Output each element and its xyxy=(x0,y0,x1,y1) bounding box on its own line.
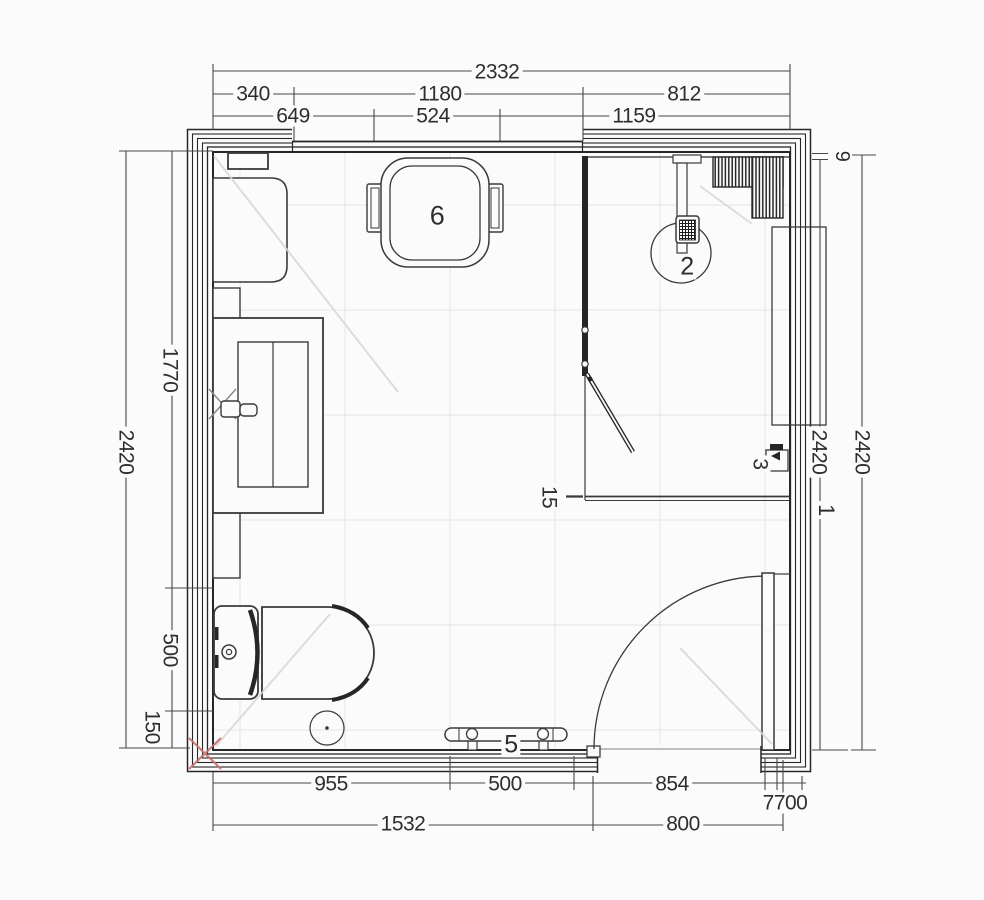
toilet xyxy=(214,606,374,700)
shower-drain-grate xyxy=(680,220,696,240)
dim-left-150: 150 xyxy=(142,707,163,747)
glass-partition xyxy=(582,156,588,376)
item-label-5: 5 xyxy=(501,733,520,758)
dim-top-649: 649 xyxy=(273,106,313,127)
dim-right-2420-outer: 2420 xyxy=(852,427,873,478)
item-label-3: 3 xyxy=(750,455,771,472)
item-label-15: 15 xyxy=(539,483,560,511)
dim-left-500: 500 xyxy=(160,630,181,670)
shower-column-mount xyxy=(673,155,701,163)
floorplan-canvas: 2332340118081264952411592420177050015092… xyxy=(0,0,984,900)
floorplan-drawing xyxy=(0,0,984,900)
dim-top-1180: 1180 xyxy=(415,84,464,105)
dim-bottom-500: 500 xyxy=(485,774,525,795)
dim-top-524: 524 xyxy=(413,106,453,127)
item-label-2: 2 xyxy=(677,255,696,280)
cabinet xyxy=(213,178,287,282)
dim-right-9: 9 xyxy=(832,148,852,165)
dim-left-1770: 1770 xyxy=(160,345,181,396)
dim-top-812: 812 xyxy=(664,84,704,105)
dim-bottom-854: 854 xyxy=(652,774,692,795)
faucet-handle xyxy=(221,401,240,417)
dim-bottom-955: 955 xyxy=(311,774,351,795)
dim-top-1159: 1159 xyxy=(609,106,658,127)
dim-top-340: 340 xyxy=(233,84,273,105)
dim-bottom-7700: 7700 xyxy=(760,793,811,814)
dim-top-total-2332: 2332 xyxy=(472,62,523,83)
dim-left-2420: 2420 xyxy=(116,427,137,478)
door-leaf xyxy=(762,573,774,750)
dim-bottom-800: 800 xyxy=(663,814,703,835)
item-label-1: 1 xyxy=(815,501,837,519)
dim-right-2420-inner: 2420 xyxy=(809,427,830,478)
dim-bottom-1532: 1532 xyxy=(378,814,429,835)
faucet-spout xyxy=(240,404,257,416)
item-label-6: 6 xyxy=(427,203,448,230)
vent-box xyxy=(228,153,268,169)
